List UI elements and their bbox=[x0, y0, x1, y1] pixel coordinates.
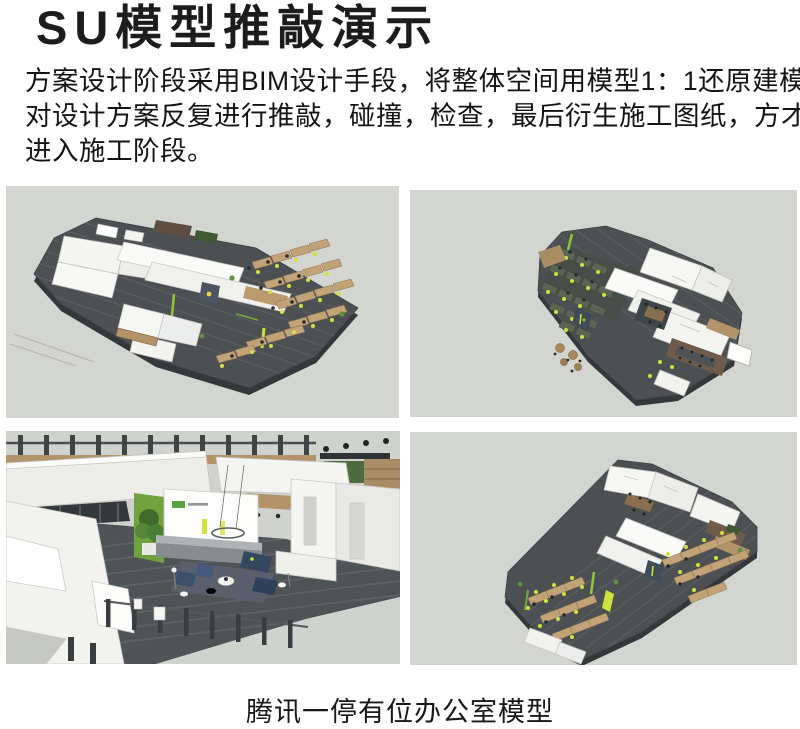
paragraph-line-2: 对设计方案反复进行推敲，碰撞，检查，最后衍生施工图纸，方才 bbox=[25, 99, 800, 134]
model-aerial-view-2 bbox=[410, 190, 797, 417]
intro-paragraph: 方案设计阶段采用BIM设计手段，将整体空间用模型1：1还原建模， 对设计方案反复… bbox=[25, 64, 800, 169]
page-title: SU模型推敲演示 bbox=[36, 0, 439, 56]
paragraph-line-1: 方案设计阶段采用BIM设计手段，将整体空间用模型1：1还原建模， bbox=[25, 64, 800, 99]
model-aerial-view-3 bbox=[410, 432, 797, 665]
slide-page: SU模型推敲演示 方案设计阶段采用BIM设计手段，将整体空间用模型1：1还原建模… bbox=[0, 0, 800, 727]
model-aerial-view-1 bbox=[6, 186, 399, 418]
paragraph-line-3: 进入施工阶段。 bbox=[25, 134, 800, 169]
brand-logo-mark bbox=[172, 501, 185, 508]
figure-caption: 腾讯一停有位办公室模型 bbox=[0, 690, 800, 729]
model-lobby-interior-view bbox=[6, 431, 400, 664]
